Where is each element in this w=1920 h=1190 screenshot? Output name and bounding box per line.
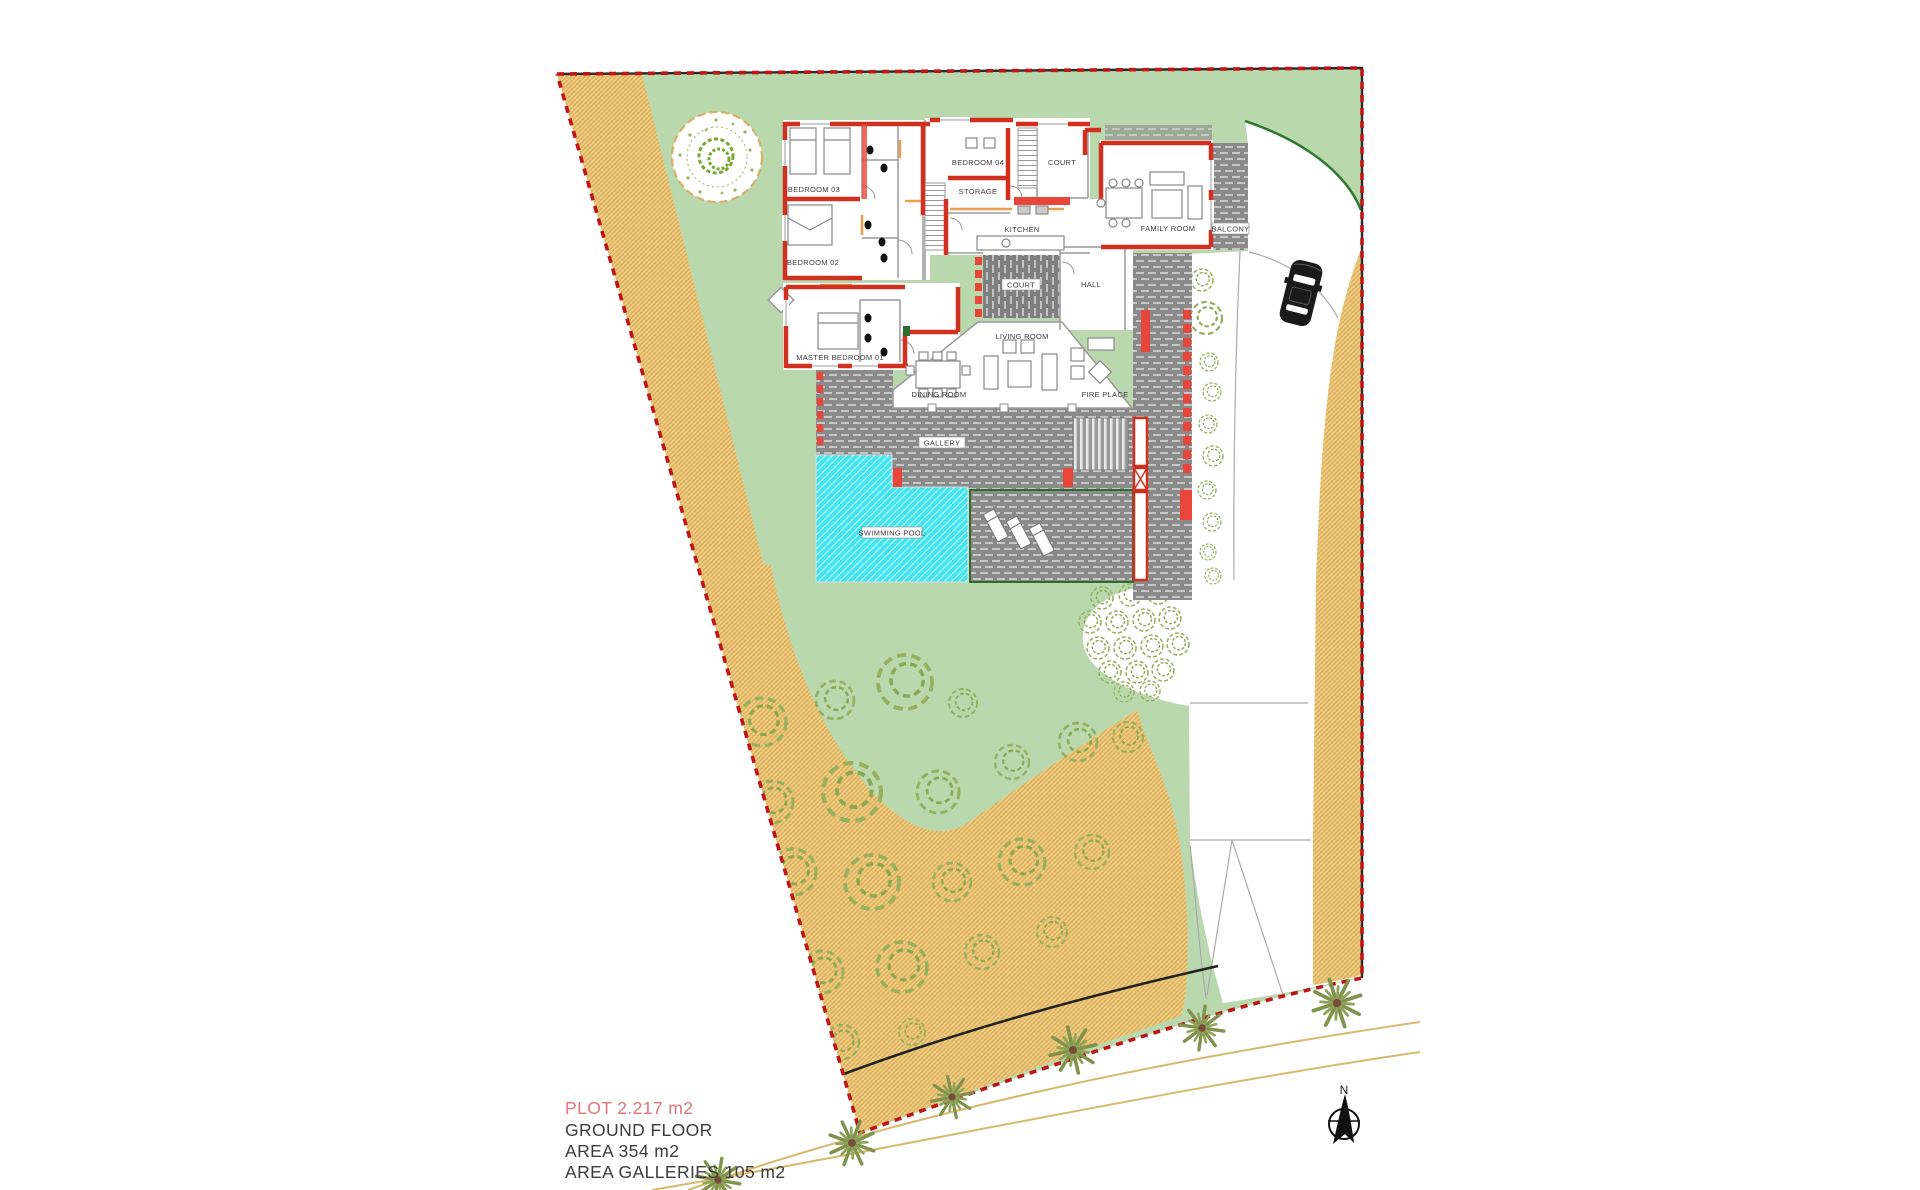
green-door-mark	[903, 326, 910, 336]
terrace-steps	[1073, 418, 1128, 470]
site-plan-drawing: BEDROOM 03 BEDROOM 02 MASTER BEDROOM 01 …	[0, 0, 1920, 1190]
annotation-area-galleries: AREA GALLERIES 105 m2	[565, 1162, 785, 1182]
large-tree-icon	[672, 112, 762, 202]
stairs-entry	[1018, 128, 1037, 188]
east-piers	[1134, 418, 1147, 580]
annotation-floor: GROUND FLOOR	[565, 1120, 713, 1140]
annotation-area: AREA 354 m2	[565, 1141, 679, 1161]
building: BEDROOM 03 BEDROOM 02 MASTER BEDROOM 01 …	[768, 117, 1249, 600]
room-label-storage: STORAGE	[959, 187, 998, 196]
north-label: N	[1340, 1083, 1349, 1097]
room-label-bedroom02: BEDROOM 02	[787, 258, 839, 267]
room-label-hall: HALL	[1081, 280, 1101, 289]
room-label-fire-place: FIRE PLACE	[1082, 390, 1129, 399]
annotation-plot-area: PLOT 2.217 m2	[565, 1098, 693, 1118]
stairs-interior	[925, 183, 945, 250]
room-label-gallery: GALLERY	[924, 439, 961, 448]
room-label-bedroom04: BEDROOM 04	[952, 158, 1004, 167]
room-label-court-center: COURT	[1007, 281, 1035, 290]
room-label-swimming-pool: SWIMMING POOL	[859, 529, 926, 538]
room-label-master-bedroom: MASTER BEDROOM 01	[796, 353, 884, 362]
room-label-bedroom03: BEDROOM 03	[788, 185, 840, 194]
room-label-kitchen: KITCHEN	[1004, 225, 1039, 234]
room-label-dining-room: DINING ROOM	[912, 390, 967, 399]
room-label-court-upper: COURT	[1048, 158, 1076, 167]
site-plan-page: BEDROOM 03 BEDROOM 02 MASTER BEDROOM 01 …	[0, 0, 1920, 1190]
room-label-balcony: BALCONY	[1212, 225, 1250, 234]
room-label-family-room: FAMILY ROOM	[1141, 224, 1196, 233]
room-label-living-room: LIVING ROOM	[995, 332, 1048, 341]
